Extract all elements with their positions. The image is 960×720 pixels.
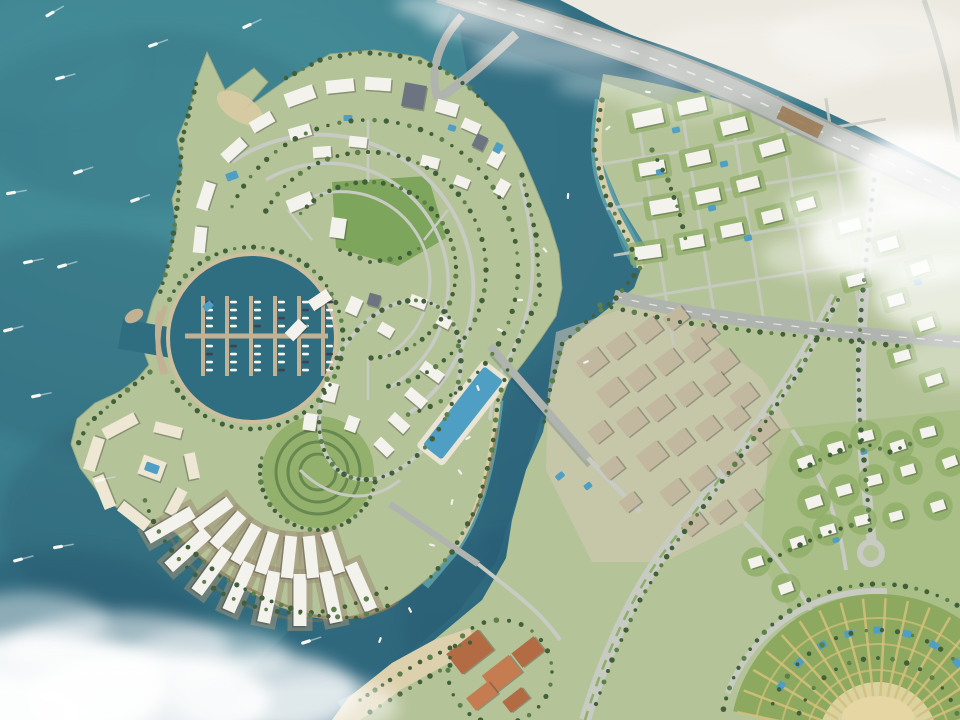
- tree: [210, 566, 215, 571]
- tree: [293, 415, 298, 420]
- tree: [368, 495, 372, 499]
- tree: [935, 594, 938, 597]
- moored-boat: [302, 353, 309, 356]
- tree: [507, 619, 511, 623]
- moored-boat: [254, 345, 261, 348]
- tree: [460, 633, 465, 638]
- tree: [459, 150, 463, 154]
- tree: [354, 616, 358, 620]
- tree: [81, 431, 85, 435]
- tree: [847, 661, 851, 665]
- tree: [275, 609, 280, 614]
- moored-boat: [206, 369, 213, 372]
- tree: [330, 462, 335, 467]
- tree: [467, 85, 472, 90]
- moored-boat: [326, 317, 333, 320]
- tree: [818, 534, 823, 539]
- tree: [465, 521, 470, 526]
- roundabout: [860, 542, 882, 564]
- tree: [332, 525, 337, 530]
- tree: [468, 641, 472, 645]
- tree: [746, 445, 750, 449]
- tree: [416, 161, 420, 165]
- tree: [309, 62, 314, 67]
- tree: [626, 238, 630, 242]
- tree: [595, 157, 599, 161]
- tree: [299, 212, 302, 215]
- tree: [111, 399, 116, 404]
- tree: [858, 317, 863, 322]
- tree: [868, 518, 872, 522]
- tree: [529, 213, 533, 217]
- tree: [631, 309, 637, 315]
- tree: [170, 239, 174, 243]
- tree: [241, 184, 246, 189]
- tree: [318, 430, 322, 434]
- tree: [341, 471, 347, 477]
- tree: [458, 703, 463, 708]
- tree: [819, 328, 823, 332]
- tree: [118, 394, 122, 398]
- tree: [777, 687, 781, 691]
- tree: [348, 52, 351, 55]
- tree: [448, 646, 453, 651]
- tree: [305, 205, 309, 209]
- tree: [862, 278, 866, 282]
- tree: [865, 629, 868, 632]
- tree: [882, 582, 886, 586]
- tree: [669, 187, 673, 191]
- tree: [447, 316, 451, 320]
- tree: [732, 461, 738, 467]
- tree: [230, 205, 233, 208]
- tree: [450, 352, 454, 356]
- moored-boat: [206, 317, 213, 320]
- tree: [771, 702, 775, 706]
- tree: [903, 584, 909, 590]
- tree: [357, 255, 362, 260]
- tree: [399, 186, 403, 190]
- tree: [317, 409, 322, 414]
- tree: [602, 185, 606, 189]
- tree: [307, 527, 312, 532]
- tree: [335, 614, 340, 619]
- tree: [167, 297, 172, 302]
- tree: [346, 519, 351, 524]
- tree: [304, 131, 308, 135]
- tree: [319, 439, 324, 444]
- tree: [323, 527, 329, 533]
- tree: [860, 298, 864, 302]
- tree: [954, 711, 959, 716]
- tree: [837, 448, 843, 454]
- tree: [233, 247, 236, 250]
- tree: [655, 315, 660, 320]
- tree: [397, 382, 401, 386]
- moored-boat: [278, 325, 285, 328]
- tree: [381, 181, 386, 186]
- tree: [530, 629, 533, 632]
- tree: [477, 308, 481, 312]
- tree: [427, 331, 431, 335]
- tree: [451, 246, 456, 251]
- tree: [568, 335, 572, 339]
- tree: [477, 228, 481, 232]
- moored-boat: [326, 345, 333, 348]
- tree: [481, 485, 485, 489]
- tree: [378, 355, 382, 359]
- tree: [407, 190, 412, 195]
- tree: [797, 542, 803, 548]
- tree: [614, 648, 619, 653]
- tree: [429, 575, 432, 578]
- tree: [318, 276, 323, 281]
- tree: [292, 136, 298, 142]
- tree: [623, 627, 628, 632]
- tree: [406, 378, 412, 384]
- tree: [493, 417, 498, 422]
- tree: [876, 656, 880, 660]
- tree: [526, 202, 531, 207]
- tree: [857, 397, 862, 402]
- tree: [778, 615, 783, 620]
- tree: [331, 607, 337, 613]
- tree: [311, 198, 316, 203]
- tree: [270, 599, 274, 603]
- tree: [274, 150, 278, 154]
- tree: [284, 76, 288, 80]
- tree: [599, 308, 604, 313]
- tree: [298, 610, 302, 614]
- tree: [479, 298, 485, 304]
- tree: [427, 673, 433, 679]
- moored-boat: [254, 361, 261, 364]
- tree: [472, 317, 477, 322]
- tree: [288, 605, 294, 611]
- tree: [812, 686, 816, 690]
- tree: [188, 403, 192, 407]
- tree: [169, 548, 174, 553]
- tree: [609, 657, 615, 663]
- island-building: [348, 136, 369, 150]
- tree: [195, 408, 200, 413]
- tree: [374, 592, 378, 596]
- tree: [471, 512, 475, 516]
- moored-boat: [278, 309, 285, 312]
- tree: [450, 292, 454, 296]
- tree: [316, 397, 321, 402]
- moored-boat: [278, 369, 285, 372]
- tree: [292, 71, 297, 76]
- cloud-puff: [762, 234, 882, 278]
- tree: [375, 608, 379, 612]
- tree: [143, 498, 148, 503]
- tree: [684, 237, 688, 241]
- tree: [249, 175, 253, 179]
- tree: [490, 352, 494, 356]
- tree: [892, 583, 897, 588]
- tree: [172, 289, 176, 293]
- moored-boat: [206, 345, 213, 348]
- tree: [807, 462, 812, 467]
- tree: [405, 298, 411, 304]
- tree: [406, 412, 411, 417]
- tree: [366, 150, 370, 154]
- tree: [808, 539, 812, 543]
- tree: [858, 418, 862, 422]
- tree: [510, 309, 515, 314]
- tree: [463, 336, 467, 340]
- tree: [849, 338, 854, 343]
- tree: [914, 587, 918, 591]
- building-roof: [401, 82, 427, 109]
- tree: [440, 221, 445, 226]
- tree: [458, 644, 461, 647]
- tree: [422, 200, 426, 204]
- tree: [304, 263, 310, 269]
- tree: [183, 273, 188, 278]
- tree: [361, 118, 365, 122]
- tree: [523, 183, 527, 187]
- tree: [452, 693, 455, 696]
- tree: [389, 304, 393, 308]
- moored-boat: [230, 353, 237, 356]
- tree: [260, 488, 265, 493]
- tree: [333, 300, 338, 305]
- tree: [193, 552, 199, 558]
- tree: [456, 380, 461, 385]
- tree: [178, 538, 182, 542]
- tree: [597, 302, 602, 307]
- tree: [678, 320, 682, 324]
- tree: [379, 307, 384, 312]
- tree: [455, 540, 460, 545]
- tree: [234, 582, 239, 587]
- tree: [727, 471, 731, 475]
- tree: [133, 382, 138, 387]
- tree: [178, 172, 182, 176]
- tree: [598, 108, 602, 112]
- tree: [418, 60, 423, 65]
- tree: [388, 678, 392, 682]
- moored-boat: [254, 369, 261, 372]
- tree: [770, 623, 774, 627]
- tree: [764, 420, 768, 424]
- tree: [258, 479, 264, 485]
- building-roof: [365, 77, 392, 92]
- tree: [489, 447, 495, 453]
- tree: [355, 150, 361, 156]
- tree: [453, 76, 456, 79]
- tree: [436, 427, 441, 432]
- tree: [332, 374, 337, 379]
- tree: [859, 583, 863, 587]
- tree: [626, 281, 630, 285]
- tree: [356, 477, 360, 481]
- tree: [168, 256, 171, 259]
- cloud-puff: [130, 627, 290, 683]
- tree: [381, 475, 385, 479]
- tree: [861, 457, 867, 463]
- tree: [883, 342, 889, 348]
- tree: [340, 523, 344, 527]
- island-building: [193, 225, 209, 254]
- tree: [448, 656, 452, 660]
- tree: [619, 638, 623, 642]
- tree: [460, 531, 464, 535]
- tree: [202, 560, 206, 564]
- tree: [797, 367, 803, 373]
- tree: [170, 380, 174, 384]
- tree: [158, 289, 162, 293]
- moored-boat: [302, 309, 309, 312]
- island-building: [364, 77, 392, 93]
- tree: [515, 251, 518, 254]
- tree: [433, 324, 439, 330]
- tree: [599, 175, 604, 180]
- tree: [714, 488, 717, 491]
- tree: [414, 298, 418, 302]
- tree: [341, 338, 345, 342]
- tree: [456, 191, 462, 197]
- tree: [861, 448, 866, 453]
- tree: [712, 324, 716, 328]
- tree: [938, 646, 943, 651]
- finger-pier: [273, 296, 277, 376]
- tree: [473, 218, 476, 221]
- tree: [949, 698, 953, 702]
- tree: [345, 616, 349, 620]
- tree: [610, 306, 614, 310]
- tree: [644, 313, 648, 317]
- tree: [289, 254, 293, 258]
- tree: [441, 309, 446, 314]
- tree: [418, 127, 424, 133]
- tree: [450, 402, 454, 406]
- tree: [827, 337, 831, 341]
- tree: [856, 347, 862, 353]
- tree: [496, 341, 502, 347]
- tree: [322, 448, 326, 452]
- island-building: [313, 146, 333, 160]
- building-roof: [313, 146, 332, 158]
- moored-boat: [326, 353, 333, 356]
- tree: [408, 57, 412, 61]
- tree: [857, 388, 861, 392]
- tree: [174, 206, 179, 211]
- tree: [371, 313, 375, 317]
- tree: [364, 596, 369, 601]
- tree: [494, 617, 500, 623]
- tree: [184, 122, 188, 126]
- cloud-puff: [472, 34, 640, 70]
- tree: [858, 427, 863, 432]
- tree: [420, 337, 425, 342]
- tree: [372, 118, 376, 122]
- tree: [515, 286, 519, 290]
- tree: [275, 192, 280, 197]
- tree: [106, 406, 109, 409]
- tree: [758, 428, 762, 432]
- tree: [264, 608, 268, 612]
- tree: [545, 648, 550, 653]
- tree: [188, 106, 192, 110]
- tree: [363, 321, 367, 325]
- tree: [235, 194, 239, 198]
- tree: [781, 394, 784, 397]
- tree: [649, 147, 654, 152]
- tree: [371, 488, 374, 491]
- tree: [598, 691, 601, 694]
- tree: [345, 151, 350, 156]
- tree: [848, 631, 853, 636]
- tree: [328, 56, 332, 60]
- tree: [484, 175, 488, 179]
- tree: [680, 224, 685, 229]
- tree: [872, 341, 877, 346]
- tree: [536, 263, 539, 266]
- tree: [667, 318, 670, 321]
- tree: [925, 639, 929, 643]
- tree: [445, 71, 450, 76]
- tree: [348, 118, 353, 123]
- tree: [335, 185, 340, 190]
- tree: [185, 566, 188, 569]
- tree: [417, 409, 421, 413]
- tree: [775, 402, 779, 406]
- tree: [258, 472, 262, 476]
- tree: [515, 274, 520, 279]
- tree: [310, 405, 314, 409]
- tree: [584, 320, 588, 324]
- tree: [302, 410, 306, 414]
- tree: [604, 194, 609, 199]
- island-building: [302, 413, 319, 433]
- tree: [433, 171, 438, 176]
- tree: [270, 247, 274, 251]
- tree: [482, 288, 487, 293]
- tree: [318, 614, 321, 617]
- tree: [678, 213, 682, 217]
- tree: [602, 680, 607, 685]
- tree: [751, 436, 756, 441]
- tree: [898, 446, 902, 450]
- tree: [670, 546, 675, 551]
- tree: [631, 273, 636, 278]
- cloud-puff: [782, 180, 922, 236]
- tree: [868, 528, 872, 532]
- tree: [151, 519, 156, 524]
- tree: [895, 629, 900, 634]
- tree: [172, 223, 177, 228]
- tree: [427, 655, 433, 661]
- tree: [860, 287, 865, 292]
- tree: [175, 387, 181, 393]
- moored-boat: [206, 325, 213, 328]
- tree: [176, 198, 180, 202]
- tree: [340, 347, 345, 352]
- tree: [387, 152, 390, 155]
- tree: [804, 698, 807, 701]
- tree: [549, 661, 553, 665]
- tree: [336, 366, 340, 370]
- tree: [476, 94, 480, 98]
- tree: [261, 246, 265, 250]
- moored-boat: [278, 345, 285, 348]
- tree: [453, 274, 458, 279]
- tree: [259, 595, 264, 600]
- tree: [338, 356, 344, 362]
